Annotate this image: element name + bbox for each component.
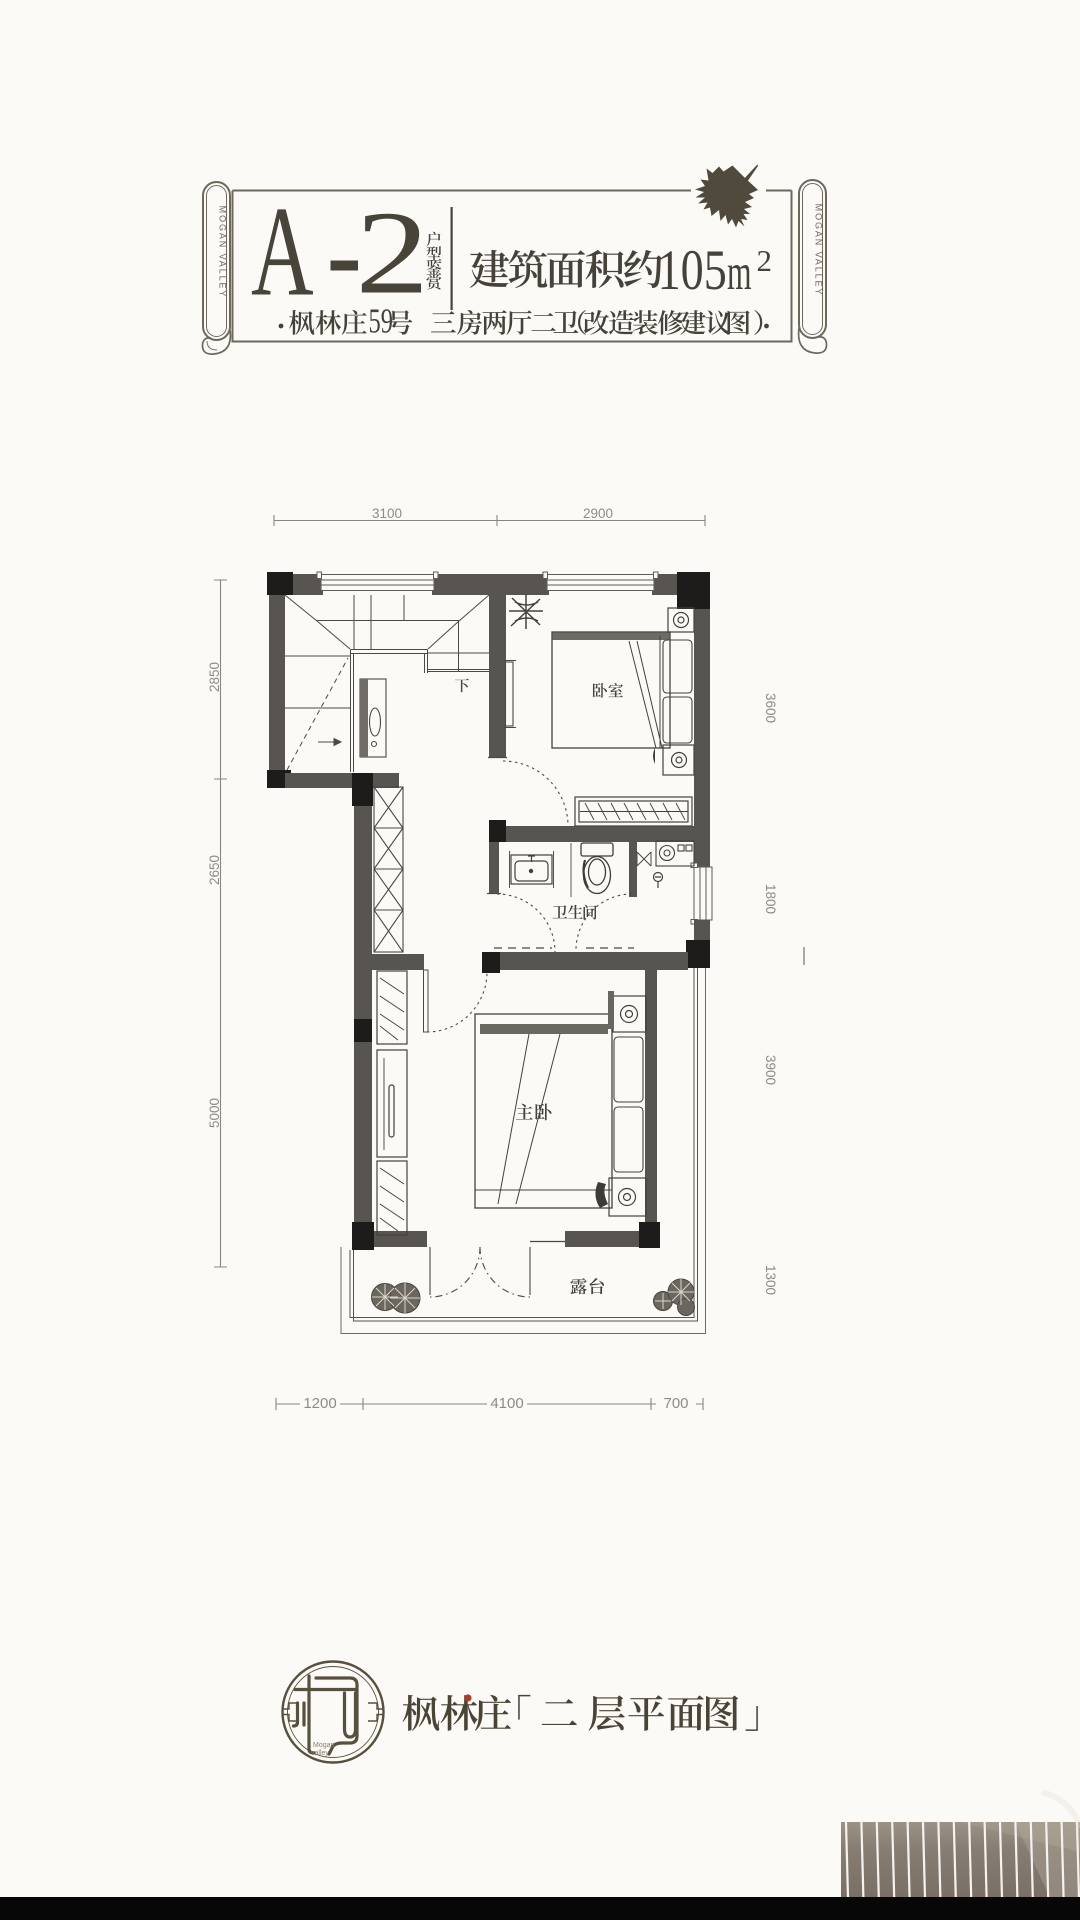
svg-text:2850: 2850 [207, 662, 222, 692]
svg-text:2: 2 [757, 243, 773, 278]
svg-text:1200: 1200 [303, 1395, 336, 1412]
svg-text:3600: 3600 [763, 693, 778, 723]
svg-text:1800: 1800 [763, 884, 778, 914]
svg-text:59: 59 [369, 301, 393, 340]
svg-text:105: 105 [658, 240, 727, 303]
svg-text:3100: 3100 [372, 506, 402, 521]
svg-text:2: 2 [355, 187, 429, 318]
svg-text:5000: 5000 [207, 1098, 222, 1128]
svg-text:2650: 2650 [207, 855, 222, 885]
svg-text:valley: valley [311, 1750, 329, 1757]
svg-text:A: A [251, 179, 314, 322]
svg-text:Mogan: Mogan [313, 1742, 335, 1749]
svg-text:1300: 1300 [763, 1265, 778, 1295]
svg-text:m: m [727, 245, 752, 301]
svg-text:4100: 4100 [490, 1395, 523, 1412]
svg-text:MOGAN VALLEY: MOGAN VALLEY [218, 206, 228, 299]
svg-text:700: 700 [663, 1395, 688, 1412]
svg-text:3900: 3900 [763, 1055, 778, 1085]
svg-text:MOGAN VALLEY: MOGAN VALLEY [814, 204, 824, 297]
svg-text:2900: 2900 [583, 506, 613, 521]
